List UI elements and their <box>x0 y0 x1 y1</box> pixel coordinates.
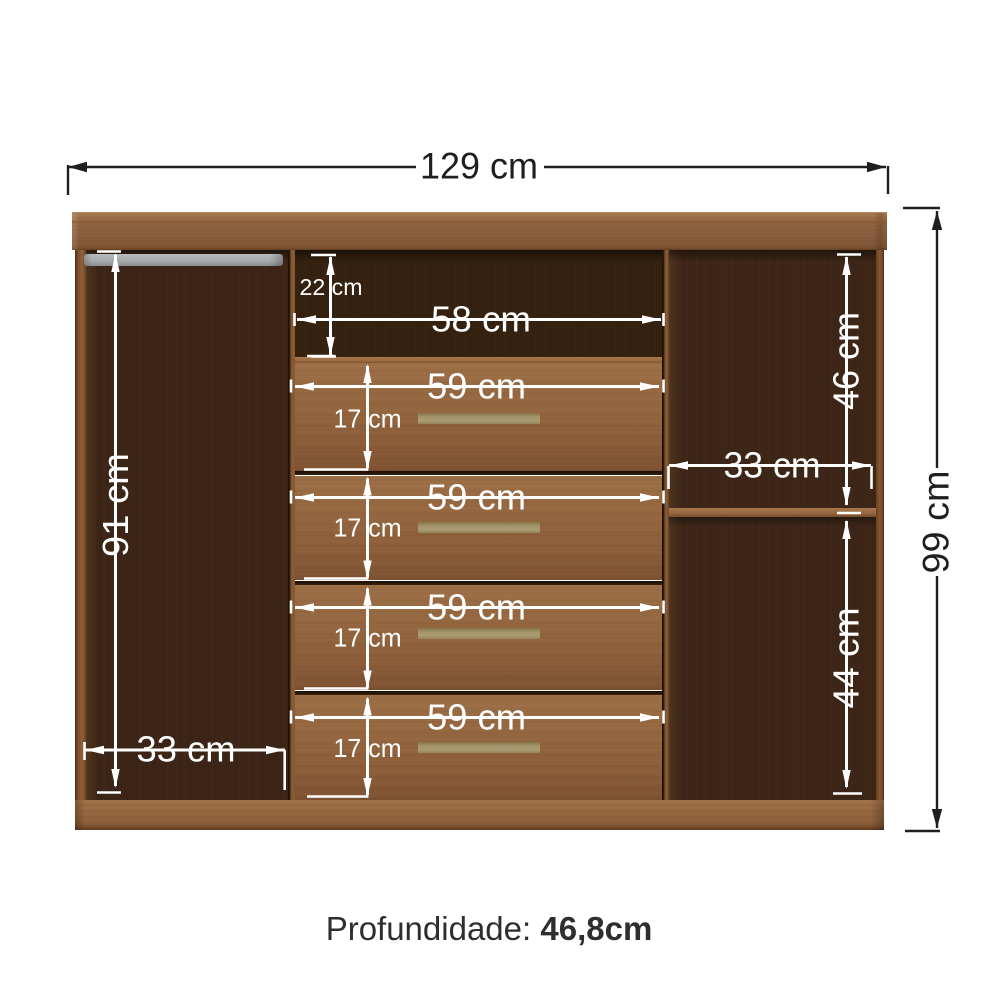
svg-text:129 cm: 129 cm <box>420 146 538 187</box>
svg-text:33 cm: 33 cm <box>137 729 236 770</box>
svg-text:44 cm: 44 cm <box>826 608 867 709</box>
svg-text:91 cm: 91 cm <box>95 453 136 557</box>
svg-text:59 cm: 59 cm <box>427 366 526 407</box>
svg-text:33 cm: 33 cm <box>724 445 821 486</box>
svg-text:59 cm: 59 cm <box>427 697 526 738</box>
svg-text:59 cm: 59 cm <box>427 587 526 628</box>
svg-text:59 cm: 59 cm <box>427 477 526 518</box>
svg-text:58 cm: 58 cm <box>431 299 531 340</box>
svg-text:22 cm: 22 cm <box>300 274 363 300</box>
svg-text:17 cm: 17 cm <box>334 404 402 434</box>
svg-text:17 cm: 17 cm <box>334 623 402 653</box>
svg-text:46 cm: 46 cm <box>826 312 867 410</box>
svg-text:17 cm: 17 cm <box>334 513 402 543</box>
svg-text:99 cm: 99 cm <box>916 471 957 574</box>
svg-text:17 cm: 17 cm <box>334 733 402 763</box>
